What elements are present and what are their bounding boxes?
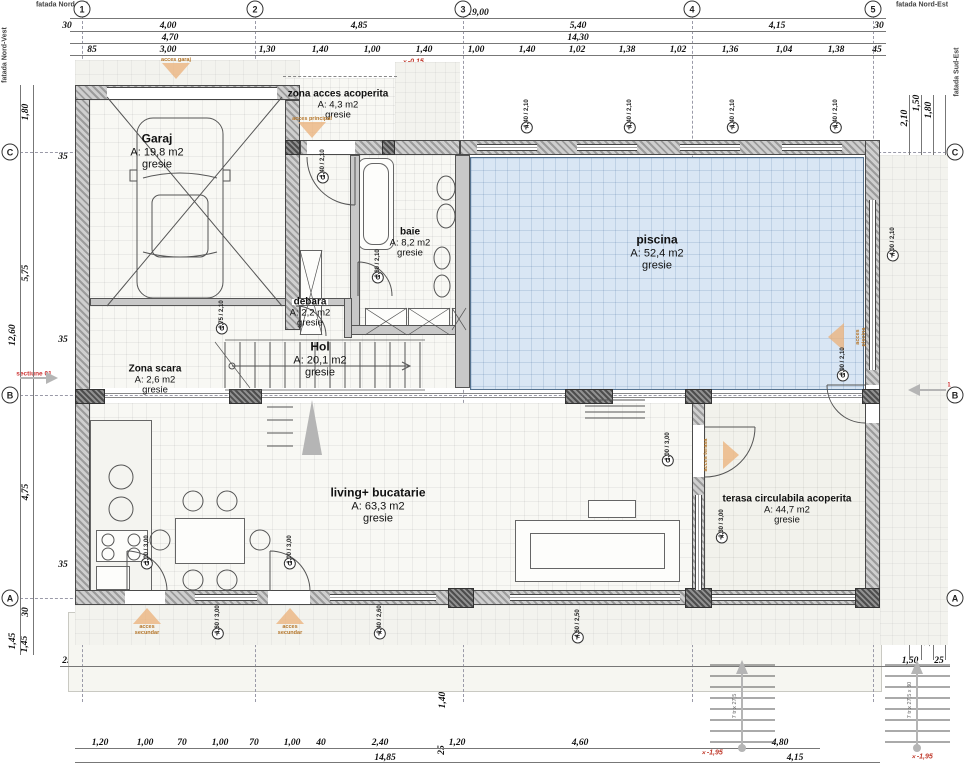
- axis-bubble-4: 4: [684, 1, 701, 18]
- dimension-label: 2,40: [372, 738, 389, 748]
- pool-window-2: [577, 144, 637, 151]
- axis-bubble-2: 2: [247, 1, 264, 18]
- dimension-label: 1,40: [416, 45, 433, 55]
- garage-door-opening: [107, 87, 277, 100]
- window-tag: 1,60 / 3,00F: [204, 617, 232, 640]
- pool-window-3: [680, 144, 740, 151]
- door-tag: 1,00 / 3,00U: [654, 444, 682, 467]
- section-label-left: sectiune 01: [16, 371, 51, 378]
- access-label: acces piscina: [855, 320, 867, 354]
- window-tag: 2,40 / 2,60F: [366, 617, 394, 640]
- access-marker-acces-piscina: acces piscina: [828, 323, 878, 351]
- level-mark: -1,95: [911, 754, 933, 761]
- dining-table: [175, 518, 245, 564]
- facade-label-top-right: fatada Nord-Est: [896, 2, 948, 9]
- pool-window-4: [782, 144, 842, 151]
- opening-size: 2,40 / 2,60: [377, 605, 383, 633]
- window-tag: 1,40 / 2,10F: [513, 111, 541, 134]
- access-marker-acces-secundar: acces secundar: [270, 608, 310, 636]
- ext-stair-dot-2: [913, 744, 921, 752]
- dimension-label: 35: [58, 335, 68, 345]
- pier-b3: [565, 389, 613, 404]
- axis-bubble-B-left: B: [2, 387, 19, 404]
- dimension-label: 1,00: [137, 738, 154, 748]
- chimney-shaft: [300, 250, 322, 335]
- ext-stair-note-2: 7 tr x 27,5 x 30: [907, 682, 913, 718]
- dimension-label: 1,20: [449, 738, 466, 748]
- opening-size: 1,00 / 3,00: [144, 535, 150, 563]
- access-label: acces terasa: [703, 438, 709, 472]
- door-secundar-2-opening: [268, 591, 310, 604]
- axis-bubble-B-right: B: [947, 387, 964, 404]
- axis-bubble-A-right: A: [947, 590, 964, 607]
- axis-bubble-1: 1: [74, 1, 91, 18]
- porch-column-left: [285, 140, 300, 155]
- wall-exterior-left: [75, 85, 90, 605]
- level-mark: -1,95: [701, 750, 723, 757]
- door-tag: 1,40 / 2,10U: [309, 161, 337, 184]
- dimension-label: 4,15: [769, 21, 786, 31]
- access-label: acces secundar: [270, 624, 310, 636]
- access-arrow-icon: [723, 441, 739, 469]
- beam-b-mid: [613, 393, 685, 398]
- dimension-label: 4,60: [572, 738, 589, 748]
- dimension-label: 1,02: [569, 45, 586, 55]
- sofa-inner: [530, 533, 665, 569]
- dimension-label: 4,75: [21, 484, 31, 501]
- dimension-label: 1,38: [619, 45, 636, 55]
- dimension-label: 5,40: [570, 21, 587, 31]
- debara-door-opening: [292, 299, 328, 305]
- door-tag: 0,80 / 2,10U: [364, 261, 392, 284]
- opening-size: 1,00 / 3,00: [665, 432, 671, 460]
- dim-line: [75, 762, 880, 763]
- dimension-label: 25: [934, 656, 944, 666]
- opening-size: 1,40 / 2,10: [524, 99, 530, 127]
- entry-landing: [395, 62, 460, 152]
- dimension-label: 70: [249, 738, 259, 748]
- dimension-label: 1,00: [284, 738, 301, 748]
- pier-b5: [862, 389, 880, 404]
- front-apron: [75, 605, 880, 645]
- dimension-label: 3,00: [160, 45, 177, 55]
- living-window-1: [195, 594, 257, 601]
- window-tag: 4,60 / 2,50F: [564, 621, 592, 644]
- dim-line: [70, 43, 886, 44]
- dimension-label: 14,30: [567, 33, 588, 43]
- opening-size: 1,40 / 2,10: [833, 99, 839, 127]
- opening-size: 0,90 / 2,10: [840, 347, 846, 375]
- access-label: acces secundar: [127, 624, 167, 636]
- dimension-label: 25: [437, 745, 447, 755]
- living-window-3: [510, 594, 680, 601]
- dimension-label: 1,38: [828, 45, 845, 55]
- dimension-label: 1,45: [8, 633, 18, 650]
- dim-line: [33, 85, 34, 655]
- pier-b1: [75, 389, 105, 404]
- porch-roof-edge: [283, 76, 397, 77]
- entry-door-opening: [307, 141, 355, 154]
- dim-line: [70, 18, 886, 19]
- door-tag: 0,75 / 2,10U: [208, 312, 236, 335]
- dimension-label: 1,00: [212, 738, 229, 748]
- facade-label-right: fatada Sud-Est: [954, 47, 961, 96]
- access-marker-acces-terasa: acces terasa: [689, 441, 739, 469]
- access-arrow-icon: [276, 608, 304, 624]
- bathtub-inner: [363, 163, 389, 245]
- window-tag: 1,40 / 2,10F: [616, 111, 644, 134]
- ext-stair-2: [885, 665, 950, 742]
- dimension-label: 35: [58, 560, 68, 570]
- dim-line: [20, 85, 21, 655]
- door-tag: 1,00 / 3,00U: [276, 547, 304, 570]
- porch-column-right: [382, 140, 395, 155]
- opening-size: 1,40 / 2,10: [627, 99, 633, 127]
- wall-debara-right: [344, 298, 352, 338]
- window-tag: 1,40 / 2,10F: [719, 111, 747, 134]
- floor-terrace: [705, 403, 865, 593]
- beam-b-right: [712, 393, 862, 398]
- opening-size: 1,40 / 2,10: [730, 99, 736, 127]
- axis-bubble-3: 3: [455, 1, 472, 18]
- door-secundar-1-opening: [125, 591, 165, 604]
- dimension-label: 1,36: [722, 45, 739, 55]
- dimension-label: 1,40: [312, 45, 329, 55]
- pier-b2: [229, 389, 262, 404]
- terrace-window: [695, 495, 702, 590]
- dimension-label: 5,75: [21, 265, 31, 282]
- beam-b-left: [105, 393, 565, 398]
- window-tag: 1,40 / 2,10F: [822, 111, 850, 134]
- dimension-label: 85: [87, 45, 97, 55]
- terrace-parapet: [712, 594, 855, 601]
- access-marker-acces-garaj: acces garaj: [156, 57, 196, 79]
- opening-size: 4,00 / 2,10: [890, 227, 896, 255]
- dim-line: [60, 666, 950, 667]
- dimension-label: 1,45: [20, 636, 30, 653]
- coffee-table: [588, 500, 636, 518]
- dimension-label: 4,00: [160, 21, 177, 31]
- dimension-label: 1,00: [364, 45, 381, 55]
- floor-plan: fatada Nord-Est fatada Nord-Est fatada S…: [0, 0, 967, 774]
- dimension-label: 35: [58, 152, 68, 162]
- dimension-label: 1,30: [259, 45, 276, 55]
- pier-terrace-left: [685, 588, 712, 608]
- dimension-label: 30: [21, 607, 31, 617]
- dimension-label: 1,80: [21, 104, 31, 121]
- axis-bubble-A-left: A: [2, 590, 19, 607]
- pier-bottom-mid: [448, 588, 474, 608]
- opening-size: 1,60 / 3,00: [215, 605, 221, 633]
- dimension-label: 1,40: [438, 692, 448, 709]
- dimension-label: 1,04: [776, 45, 793, 55]
- pier-b4: [685, 389, 712, 404]
- living-window-2: [330, 594, 436, 601]
- dimension-label: 4,85: [351, 21, 368, 31]
- floor-hol: [350, 330, 460, 388]
- axis-bubble-C-right: C: [947, 144, 964, 161]
- dimension-label: 1,50: [902, 656, 919, 666]
- dimension-label: 30: [874, 21, 884, 31]
- access-arrow-icon: [133, 608, 161, 624]
- pool-water: [470, 157, 864, 390]
- dimension-label: 4,70: [162, 33, 179, 43]
- dimension-label: 1,20: [92, 738, 109, 748]
- opening-size: 1,40 / 2,10: [320, 149, 326, 177]
- access-arrow-icon: [298, 122, 326, 138]
- section-arrow-left: [46, 372, 58, 384]
- door-tag: 0,90 / 2,10U: [829, 359, 857, 382]
- axis-bubble-5: 5: [865, 1, 882, 18]
- pier-terrace-right: [855, 588, 880, 608]
- access-marker-acces-secundar: acces secundar: [127, 608, 167, 636]
- opening-size: 4,60 / 2,50: [575, 609, 581, 637]
- dimension-label: 4,80: [772, 738, 789, 748]
- pool-window-1: [477, 144, 537, 151]
- dim-line: [70, 55, 886, 56]
- dimension-label: 1,02: [670, 45, 687, 55]
- dimension-label: 30: [62, 21, 72, 31]
- wall-bath-bottom: [350, 325, 460, 335]
- opening-size: 1,00 / 3,00: [287, 535, 293, 563]
- floor-garage: [90, 100, 285, 328]
- dim-line: [70, 31, 886, 32]
- access-arrow-icon: [162, 63, 190, 79]
- wall-bath-pool: [455, 155, 470, 388]
- boiler-ct: [96, 566, 130, 590]
- opening-size: 0,80 / 2,10: [375, 249, 381, 277]
- window-tag: 2,30 / 3,00F: [708, 521, 736, 544]
- dim-line: [75, 748, 820, 749]
- dimension-label: 70: [177, 738, 187, 748]
- window-tag: 4,00 / 2,10F: [879, 239, 907, 262]
- ext-stair-arrow-2: [911, 660, 923, 674]
- dimension-label: 1,00: [468, 45, 485, 55]
- dimension-label: 12,60: [8, 324, 18, 345]
- door-tag: 1,00 / 3,00U: [133, 547, 161, 570]
- dimension-label: 40: [316, 738, 326, 748]
- opening-size: 0,75 / 2,10: [219, 300, 225, 328]
- facade-label-left: fatada Nord-Vest: [2, 27, 9, 83]
- access-marker-acces-principal: acces principal: [292, 116, 332, 138]
- opening-size: 2,30 / 3,00: [719, 509, 725, 537]
- dimension-label: 1,40: [519, 45, 536, 55]
- axis-bubble-C-left: C: [2, 144, 19, 161]
